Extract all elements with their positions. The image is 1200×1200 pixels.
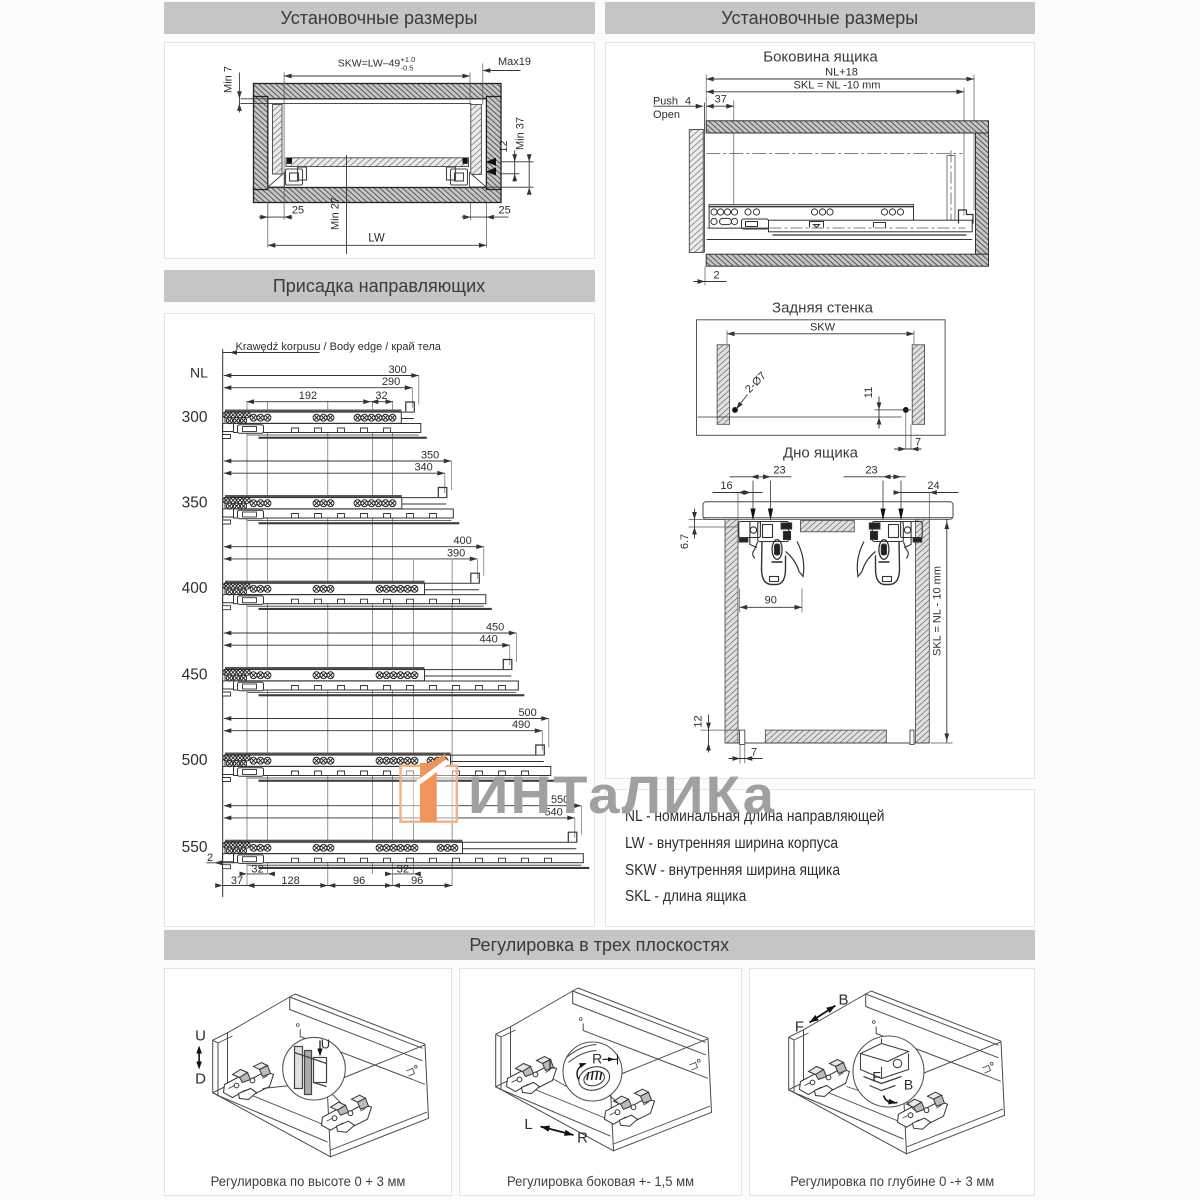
svg-text:Min 27: Min 27 bbox=[329, 196, 341, 229]
svg-text:96: 96 bbox=[352, 875, 364, 887]
svg-text:R: R bbox=[577, 1129, 588, 1146]
svg-text:96: 96 bbox=[411, 875, 423, 887]
svg-text:Max19: Max19 bbox=[497, 56, 530, 68]
svg-text:F: F bbox=[872, 1068, 881, 1084]
svg-text:32: 32 bbox=[375, 390, 387, 402]
svg-text:23: 23 bbox=[865, 464, 877, 476]
svg-text:12: 12 bbox=[692, 715, 704, 727]
svg-text:37: 37 bbox=[714, 93, 726, 105]
svg-text:400: 400 bbox=[181, 580, 207, 597]
svg-text:300: 300 bbox=[181, 409, 207, 426]
svg-text:6.7: 6.7 bbox=[679, 533, 691, 548]
svg-text:550: 550 bbox=[181, 839, 207, 856]
svg-text:490: 490 bbox=[511, 719, 529, 731]
svg-text:SKL = NL - 10 mm: SKL = NL - 10 mm bbox=[931, 566, 943, 656]
svg-text:Min 7: Min 7 bbox=[222, 66, 234, 93]
svg-text:Krawędź korpusu / Body edge /: Krawędź korpusu / Body edge / край тела bbox=[235, 341, 441, 353]
svg-text:SKW=LW–49: SKW=LW–49 bbox=[337, 57, 400, 69]
svg-text:SKL = NL -10 mm: SKL = NL -10 mm bbox=[793, 79, 880, 91]
svg-text:350: 350 bbox=[420, 450, 438, 462]
svg-text:LW: LW bbox=[368, 232, 385, 244]
svg-text:F: F bbox=[794, 1018, 803, 1035]
svg-text:25: 25 bbox=[498, 204, 510, 216]
svg-text:NL+18: NL+18 bbox=[825, 66, 858, 78]
svg-text:23: 23 bbox=[773, 464, 785, 476]
svg-text:2: 2 bbox=[713, 269, 719, 281]
svg-text:300: 300 bbox=[388, 364, 406, 376]
svg-text:192: 192 bbox=[298, 390, 316, 402]
svg-text:NL: NL bbox=[190, 365, 208, 381]
svg-text:390: 390 bbox=[446, 547, 464, 559]
svg-text:D: D bbox=[195, 1070, 206, 1087]
svg-text:90: 90 bbox=[764, 594, 776, 606]
svg-text:B: B bbox=[903, 1076, 912, 1092]
svg-text:37: 37 bbox=[230, 875, 242, 887]
svg-text:340: 340 bbox=[414, 462, 432, 474]
svg-text:Min 37: Min 37 bbox=[514, 116, 526, 149]
svg-text:32: 32 bbox=[396, 864, 408, 876]
svg-text:11: 11 bbox=[863, 386, 875, 397]
svg-text:350: 350 bbox=[181, 495, 207, 512]
svg-text:440: 440 bbox=[479, 634, 497, 646]
svg-text:-0.5: -0.5 bbox=[400, 63, 413, 72]
svg-text:450: 450 bbox=[181, 667, 207, 684]
svg-text:12: 12 bbox=[498, 140, 510, 152]
svg-text:R: R bbox=[592, 1050, 602, 1066]
svg-text:25: 25 bbox=[291, 204, 303, 216]
svg-text:U: U bbox=[195, 1027, 206, 1044]
svg-text:B: B bbox=[838, 991, 848, 1008]
svg-text:400: 400 bbox=[453, 535, 471, 547]
svg-text:2: 2 bbox=[206, 852, 212, 864]
svg-text:L: L bbox=[548, 1055, 556, 1071]
svg-text:450: 450 bbox=[485, 622, 503, 634]
svg-text:Push: Push bbox=[652, 95, 677, 107]
svg-text:16: 16 bbox=[720, 480, 732, 492]
svg-text:Дно ящика: Дно ящика bbox=[782, 444, 858, 461]
svg-text:Боковина ящика: Боковина ящика bbox=[763, 48, 878, 65]
svg-text:L: L bbox=[524, 1115, 532, 1132]
svg-text:7: 7 bbox=[914, 436, 920, 448]
svg-text:128: 128 bbox=[281, 875, 299, 887]
svg-text:24: 24 bbox=[927, 480, 939, 492]
svg-text:SKW: SKW bbox=[809, 321, 835, 333]
svg-text:500: 500 bbox=[181, 752, 207, 769]
svg-text:4: 4 bbox=[684, 95, 690, 107]
svg-text:32: 32 bbox=[251, 864, 263, 876]
svg-text:Open: Open bbox=[653, 108, 680, 120]
svg-text:500: 500 bbox=[518, 707, 536, 719]
svg-text:Задняя стенка: Задняя стенка bbox=[772, 299, 874, 316]
svg-text:ИНТаЛИКа: ИНТаЛИКа bbox=[468, 765, 776, 824]
svg-text:290: 290 bbox=[381, 376, 399, 388]
svg-text:U: U bbox=[320, 1036, 329, 1051]
